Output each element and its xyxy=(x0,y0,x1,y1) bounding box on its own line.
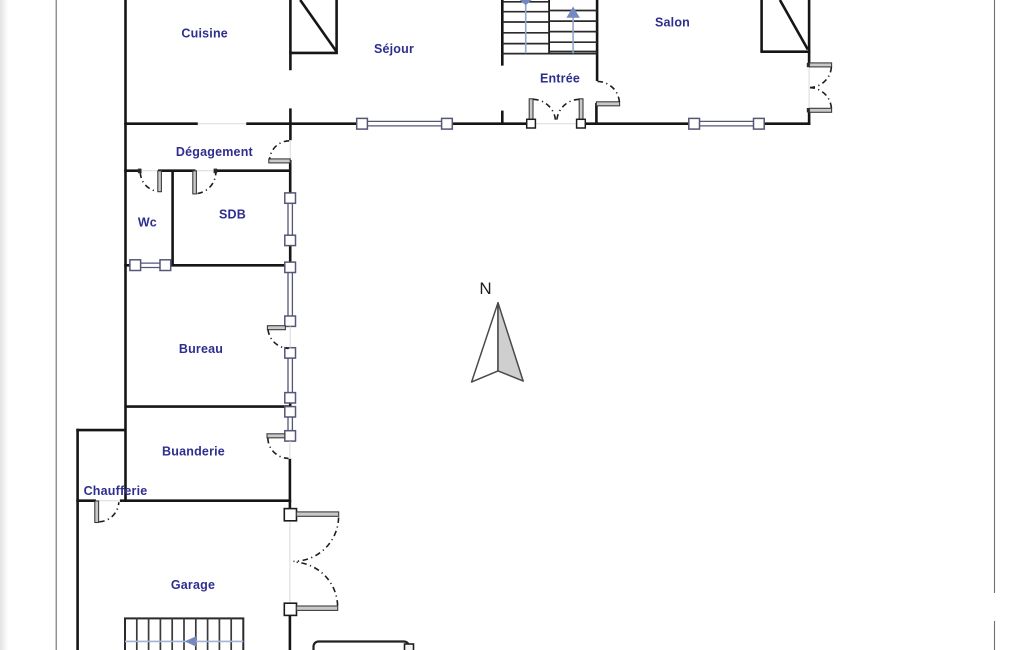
svg-text:Séjour: Séjour xyxy=(374,42,414,56)
svg-text:Cuisine: Cuisine xyxy=(181,27,228,41)
svg-text:Dégagement: Dégagement xyxy=(176,145,254,159)
svg-text:N: N xyxy=(479,279,491,298)
svg-text:Buanderie: Buanderie xyxy=(162,445,225,459)
svg-text:Entrée: Entrée xyxy=(540,72,580,86)
svg-text:Bureau: Bureau xyxy=(179,342,223,356)
svg-text:Wc: Wc xyxy=(138,216,157,230)
svg-text:SDB: SDB xyxy=(219,207,246,221)
svg-text:Garage: Garage xyxy=(171,578,215,592)
svg-text:Salon: Salon xyxy=(655,16,690,30)
svg-text:Chaufferie: Chaufferie xyxy=(84,484,148,498)
